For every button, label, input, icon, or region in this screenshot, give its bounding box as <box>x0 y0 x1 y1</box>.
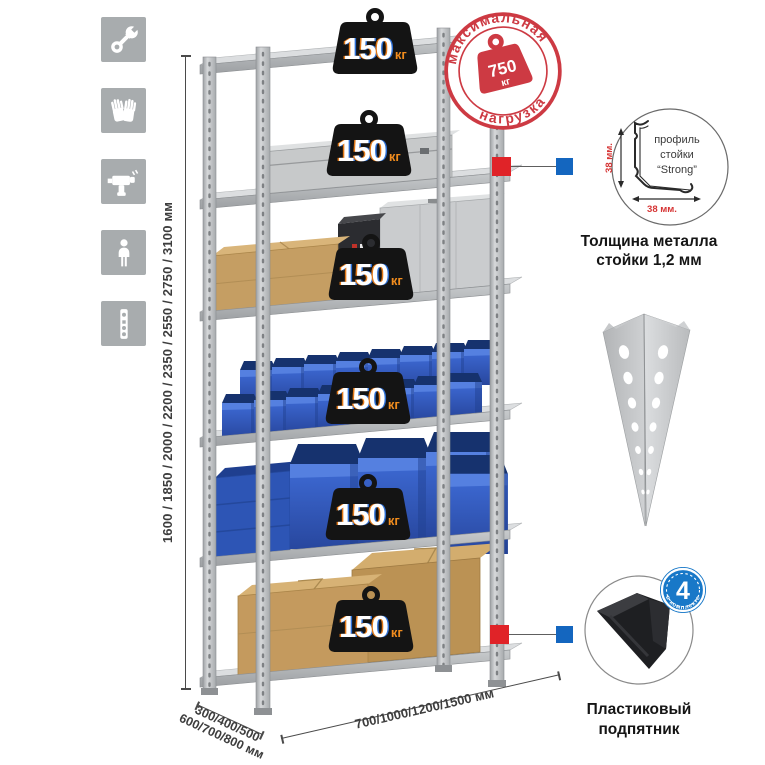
profile-label-line2: стойки <box>660 149 694 161</box>
foot-caption-line2: подпятник <box>598 721 679 738</box>
product-infographic: 1600 / 1850 / 2000 / 2200 / 2350 / 2550 … <box>0 0 765 765</box>
profile-callout: 38 мм. 38 мм. профиль стойки “Strong” То… <box>581 109 728 269</box>
angle-post-image <box>603 314 690 526</box>
profile-label-line3: “Strong” <box>657 164 697 176</box>
profile-label-line1: профиль <box>654 134 700 146</box>
foot-callout: 4 в комплекте Пластиковый подпятник <box>585 568 706 739</box>
foot-caption-line1: Пластиковый <box>587 701 692 718</box>
profile-dim-vertical-label: 38 мм. <box>604 143 615 173</box>
count-badge: 4 в комплекте <box>661 568 706 613</box>
profile-caption-line1: Толщина металла <box>581 233 718 250</box>
right-callouts: 38 мм. 38 мм. профиль стойки “Strong” То… <box>0 0 765 765</box>
profile-caption-line2: стойки 1,2 мм <box>596 252 701 269</box>
count-badge-value: 4 <box>676 577 690 605</box>
profile-dim-horizontal-label: 38 мм. <box>647 204 677 215</box>
